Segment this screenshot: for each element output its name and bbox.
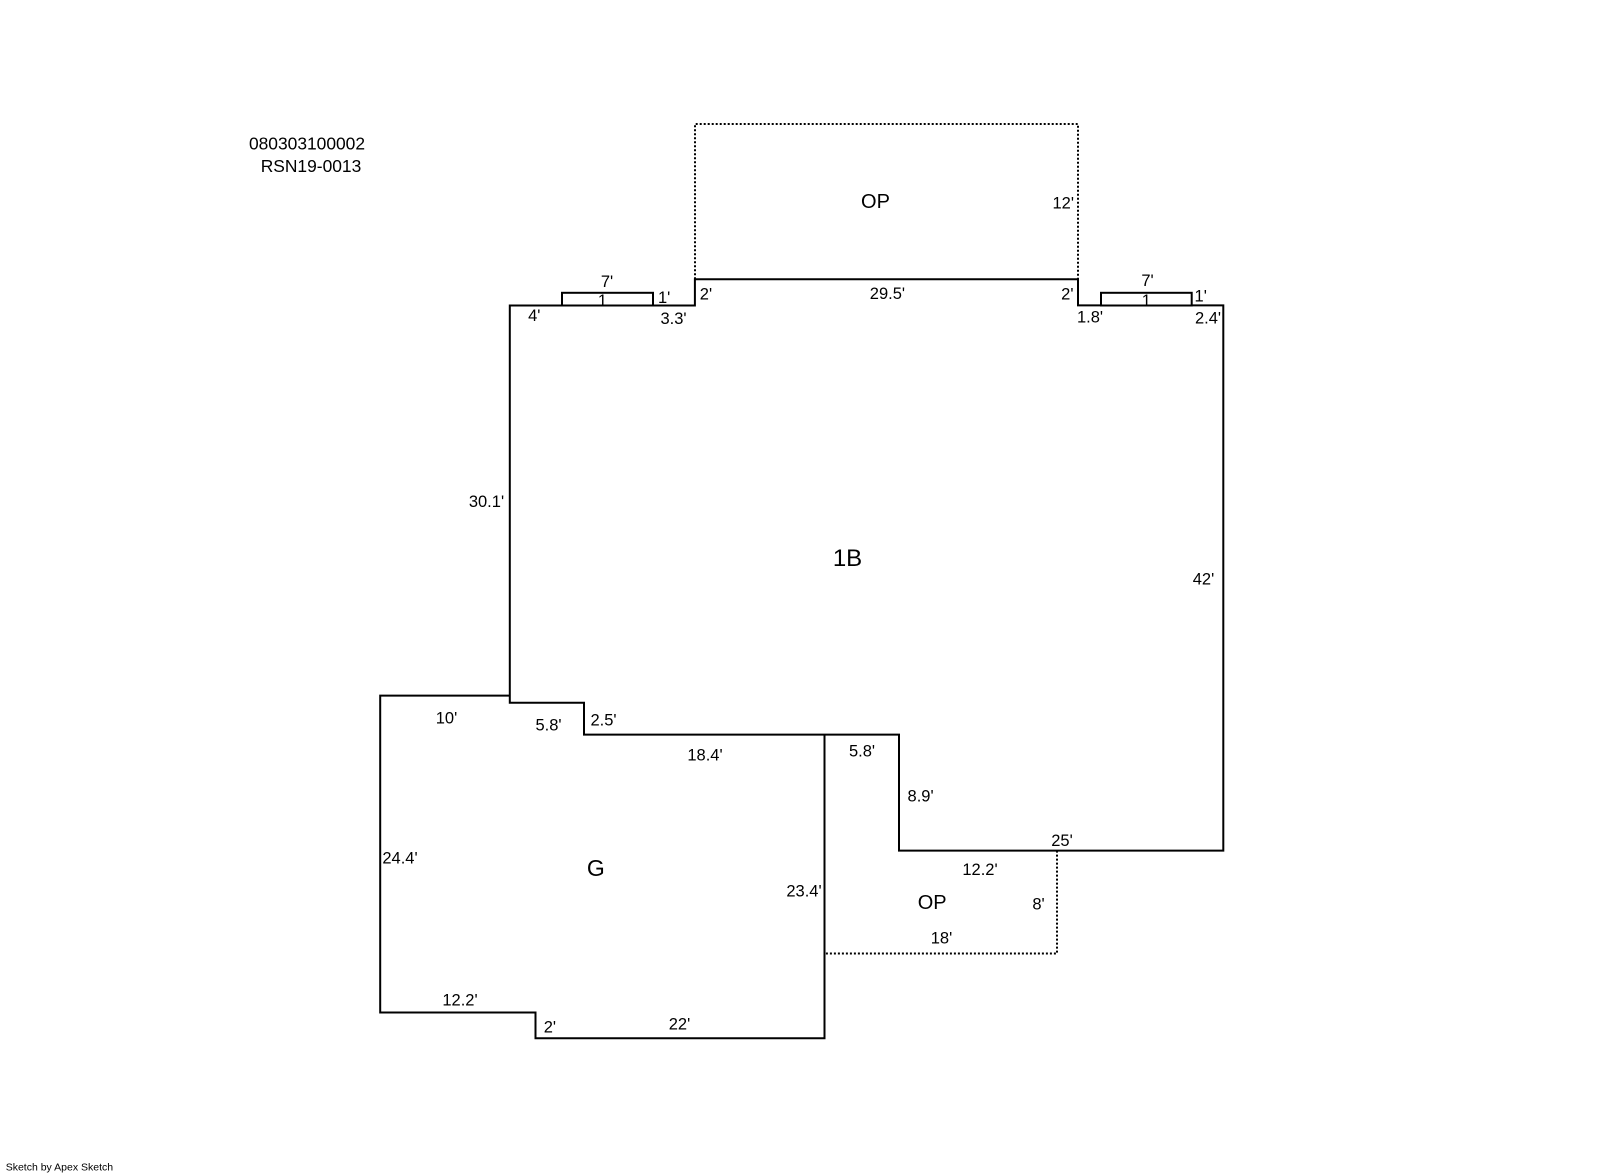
svg-text:2.5': 2.5' (590, 712, 616, 730)
svg-text:25': 25' (1051, 832, 1073, 850)
svg-text:42': 42' (1193, 571, 1215, 589)
svg-text:2': 2' (544, 1019, 556, 1037)
svg-text:5.8': 5.8' (849, 743, 875, 761)
svg-text:1': 1' (1195, 288, 1207, 306)
svg-text:1: 1 (598, 292, 607, 310)
svg-text:G: G (587, 855, 605, 881)
svg-text:18': 18' (931, 930, 953, 948)
svg-text:12.2': 12.2' (962, 861, 997, 879)
svg-text:080303100002: 080303100002 (249, 134, 365, 154)
svg-text:23.4': 23.4' (786, 882, 821, 900)
svg-text:12': 12' (1052, 194, 1074, 212)
svg-text:4': 4' (528, 307, 540, 325)
svg-text:1': 1' (658, 289, 670, 307)
svg-text:5.8': 5.8' (535, 717, 561, 735)
svg-text:2.4': 2.4' (1195, 309, 1221, 327)
svg-text:2': 2' (1061, 286, 1073, 304)
svg-text:8.9': 8.9' (908, 788, 934, 806)
svg-text:22': 22' (669, 1016, 691, 1034)
svg-text:30.1': 30.1' (469, 493, 504, 511)
svg-text:7': 7' (1141, 272, 1153, 290)
svg-text:10': 10' (436, 710, 458, 728)
svg-text:3.3': 3.3' (660, 310, 686, 328)
svg-text:24.4': 24.4' (382, 850, 417, 868)
svg-text:1B: 1B (833, 545, 862, 572)
svg-text:8': 8' (1032, 896, 1044, 914)
svg-text:1.8': 1.8' (1077, 309, 1103, 327)
svg-text:1: 1 (1142, 292, 1151, 310)
svg-text:OP: OP (918, 892, 947, 914)
svg-text:OP: OP (861, 191, 890, 213)
svg-text:7': 7' (601, 273, 613, 291)
svg-text:Sketch by Apex Sketch: Sketch by Apex Sketch (6, 1162, 114, 1174)
svg-text:18.4': 18.4' (687, 747, 722, 765)
svg-text:12.2': 12.2' (442, 992, 477, 1010)
svg-text:RSN19-0013: RSN19-0013 (261, 156, 362, 176)
svg-text:29.5': 29.5' (870, 285, 905, 303)
svg-text:2': 2' (700, 285, 712, 303)
